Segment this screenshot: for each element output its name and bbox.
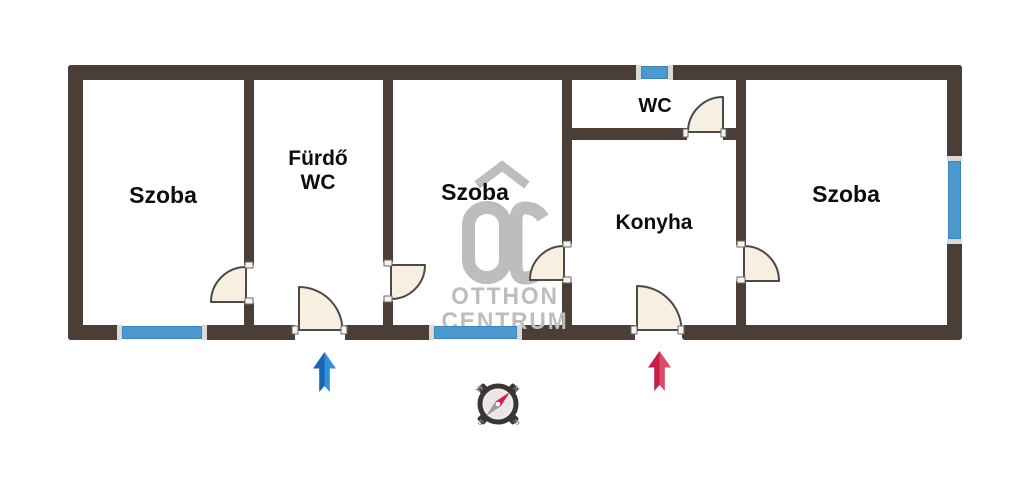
compass-pivot <box>496 402 501 407</box>
room-label-szoba-right: Szoba <box>776 181 916 208</box>
room-label-furdo-line1: Fürdő <box>258 147 378 171</box>
room-label-furdo-line2: WC <box>258 171 378 195</box>
room-label-furdo-wc: Fürdő WC <box>258 147 378 195</box>
room-label-konyha: Konyha <box>584 211 724 235</box>
red-arrow-icon <box>648 351 671 391</box>
room-label-szoba-left: Szoba <box>93 182 233 209</box>
blue-arrow-icon <box>313 352 336 392</box>
compass-icon: W N S E <box>474 382 521 427</box>
room-label-szoba-middle: Szoba <box>405 179 545 206</box>
decor-layer: W N S E <box>0 0 1011 500</box>
floor-plan: OTTHON CENTRUM <box>0 0 1011 500</box>
room-label-wc: WC <box>595 95 715 118</box>
